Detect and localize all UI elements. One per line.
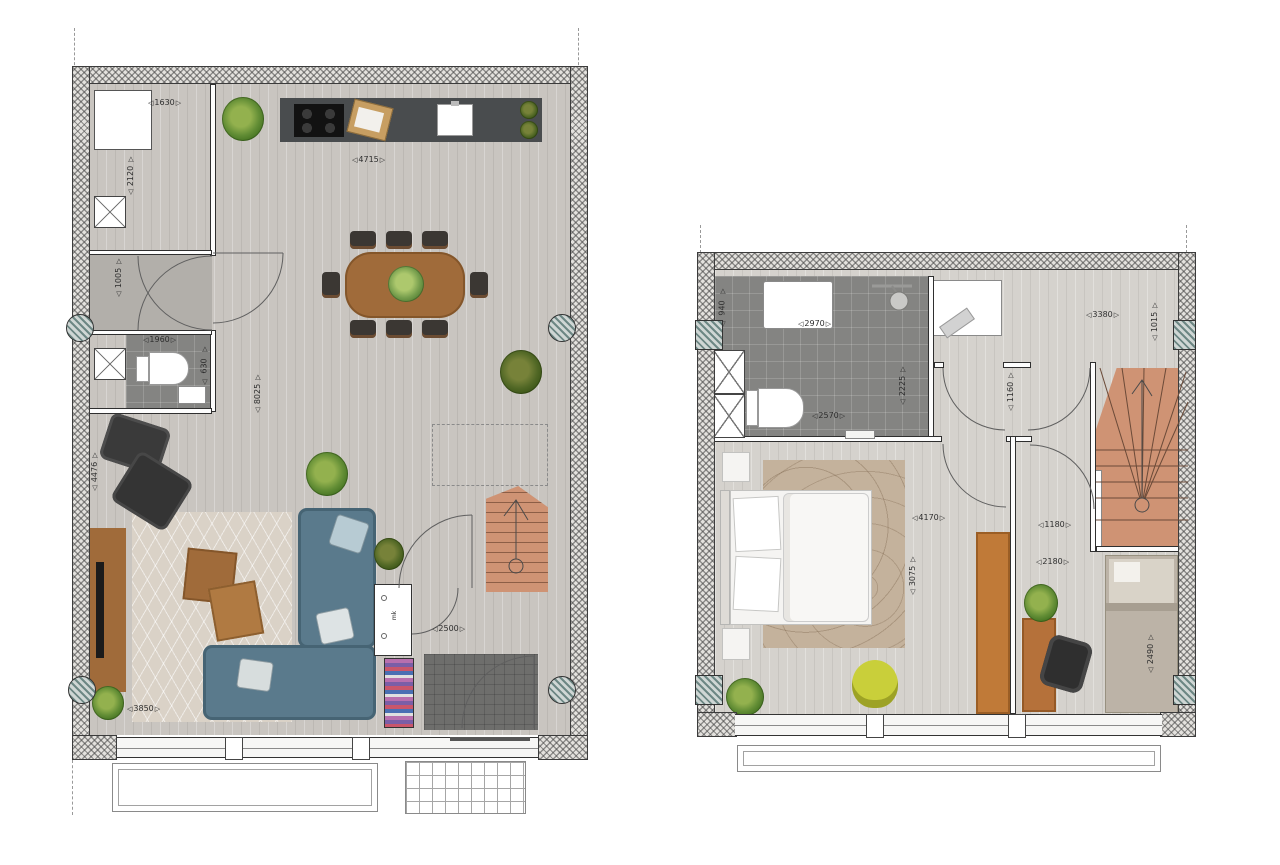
dim-arrow-right-icon: ▷	[460, 626, 465, 633]
wall-bottom-stub	[697, 712, 737, 737]
wardrobe	[976, 532, 1010, 714]
dim-arrow-right-icon: ▷	[1064, 559, 1069, 566]
dim-arrow-down-icon: ▽	[1008, 405, 1013, 412]
dim-arrow-right-icon: ▷	[155, 706, 160, 713]
dining-chair	[350, 320, 376, 338]
dim-arrow-down-icon: ▽	[900, 399, 905, 406]
dim-value: 3075	[909, 566, 917, 586]
window-band	[735, 714, 1162, 736]
dim-arrow-left-icon: ◁	[432, 626, 437, 633]
dim-arrow-down-icon: ▽	[720, 321, 725, 328]
dim-arrow-up-icon: △	[92, 452, 97, 459]
terrace-outline	[112, 763, 378, 812]
storage-cabinet	[94, 90, 152, 150]
dining-chair	[386, 320, 412, 338]
balcony-outline	[737, 745, 1161, 772]
plant-icon	[726, 678, 764, 716]
dimension-label: △8025▽	[251, 374, 265, 414]
wall-left	[72, 66, 90, 740]
balcony-inner-line	[743, 751, 1155, 766]
dimension-label: ◁3380▷	[1086, 311, 1119, 319]
dimension-label: ◁3850▷	[127, 705, 160, 713]
floorplan-canvas: mk ◁1630▷ ◁4715▷ △2120▽ △1005▽ ◁1960▷ △6…	[0, 0, 1280, 865]
plant-icon	[1024, 584, 1058, 622]
dimension-label: ◁1960▷	[143, 336, 176, 344]
dim-value: 4715	[358, 156, 378, 164]
bed-headboard	[720, 490, 730, 625]
dimension-label: ◁1630▷	[148, 99, 181, 107]
dim-value: 1630	[154, 99, 174, 107]
dim-value: 940	[719, 300, 727, 315]
interior-wall	[1003, 362, 1031, 368]
stair-void-dashed	[432, 424, 548, 486]
terrace-inner-line	[118, 769, 372, 806]
staircase-winder	[1096, 368, 1182, 548]
dim-arrow-left-icon: ◁	[1038, 522, 1043, 529]
dim-arrow-right-icon: ▷	[176, 100, 181, 107]
pier	[1173, 675, 1196, 705]
dim-value: 4476	[91, 462, 99, 482]
dim-arrow-up-icon: △	[910, 556, 915, 563]
plant-icon	[520, 101, 538, 119]
wall-bottom-stub	[1160, 712, 1196, 737]
column	[66, 314, 94, 342]
dim-arrow-left-icon: ◁	[1036, 559, 1041, 566]
meter-dial-icon	[381, 595, 387, 601]
dim-value: 3850	[133, 705, 153, 713]
toilet-tank	[746, 390, 758, 426]
dimension-label: ◁4170▷	[912, 514, 945, 522]
pier	[1173, 320, 1196, 350]
dim-value: 2120	[127, 166, 135, 186]
table-centerpiece-plant	[388, 266, 424, 302]
pillow	[236, 658, 274, 692]
pillow	[1114, 562, 1140, 582]
meter-dial-icon	[381, 633, 387, 639]
board-paper	[354, 107, 384, 133]
dim-arrow-right-icon: ▷	[1066, 522, 1071, 529]
column	[548, 314, 576, 342]
single-bed	[1105, 555, 1178, 713]
dim-arrow-right-icon: ▷	[840, 413, 845, 420]
dim-value: 2570	[818, 412, 838, 420]
interior-wall	[88, 408, 212, 414]
column	[68, 676, 96, 704]
dim-arrow-down-icon: ▽	[1152, 335, 1157, 342]
pillow	[733, 496, 782, 552]
entrance-hall-floor	[88, 255, 212, 330]
dining-chair	[422, 231, 448, 249]
column	[548, 676, 576, 704]
dim-arrow-left-icon: ◁	[143, 337, 148, 344]
dim-value: 2180	[1042, 558, 1062, 566]
dim-arrow-right-icon: ▷	[171, 337, 176, 344]
interior-wall	[1096, 546, 1188, 552]
dim-arrow-up-icon: △	[1152, 302, 1157, 309]
dim-arrow-right-icon: ▷	[1114, 312, 1119, 319]
bookshelf	[384, 658, 414, 728]
dimension-label: △630▽	[198, 346, 212, 386]
window-mullion	[225, 737, 243, 760]
duct-shaft	[713, 350, 745, 394]
dimension-label: △4476▽	[88, 452, 102, 492]
dim-arrow-down-icon: ▽	[92, 485, 97, 492]
dimension-label: △2225▽	[896, 366, 910, 406]
dim-value: 1960	[149, 336, 169, 344]
tv-screen	[96, 562, 104, 658]
dimension-label: ◁2970▷	[798, 320, 831, 328]
window-mullion	[1008, 714, 1026, 738]
dim-arrow-left-icon: ◁	[1086, 312, 1091, 319]
dining-chair	[386, 231, 412, 249]
dim-value: 3380	[1092, 311, 1112, 319]
window-glass-line	[735, 725, 1162, 726]
dim-arrow-up-icon: △	[128, 156, 133, 163]
interior-wall	[712, 436, 942, 442]
dim-arrow-down-icon: ▽	[1148, 667, 1153, 674]
dim-arrow-up-icon: △	[900, 366, 905, 373]
dim-arrow-up-icon: △	[720, 288, 725, 295]
wall-bottom-stub	[72, 735, 117, 760]
dimension-label: ◁2500▷	[432, 625, 465, 633]
dining-chair	[470, 272, 488, 298]
dim-arrow-left-icon: ◁	[812, 413, 817, 420]
wc-sink	[178, 386, 206, 404]
plant-icon	[500, 350, 542, 394]
dimension-label: △1015▽	[1148, 302, 1162, 342]
front-door-leaf	[450, 737, 530, 741]
interior-wall	[88, 250, 212, 255]
faucet	[451, 101, 459, 106]
window-glass-line	[117, 748, 440, 749]
dim-arrow-up-icon: △	[1008, 372, 1013, 379]
duvet-fold	[1106, 603, 1177, 611]
dim-arrow-down-icon: ▽	[202, 379, 207, 386]
dining-chair	[422, 320, 448, 338]
dim-arrow-down-icon: ▽	[255, 407, 260, 414]
dim-arrow-up-icon: △	[1148, 634, 1153, 641]
dim-arrow-right-icon: ▷	[380, 157, 385, 164]
dim-arrow-down-icon: ▽	[128, 189, 133, 196]
dim-arrow-up-icon: △	[116, 258, 121, 265]
plant-icon	[520, 121, 538, 139]
dimension-label: △940▽	[716, 288, 730, 328]
kitchen-sink	[437, 104, 473, 136]
dim-arrow-down-icon: ▽	[116, 291, 121, 298]
coffee-table	[208, 580, 265, 642]
duvet	[783, 493, 869, 622]
dim-value: 2490	[1147, 644, 1155, 664]
meter-closet-label: mk	[391, 611, 398, 620]
nightstand	[722, 452, 750, 482]
wall-bottom-stub	[538, 735, 588, 760]
dim-value: 8025	[254, 384, 262, 404]
door-threshold	[845, 430, 875, 439]
dim-value: 1005	[115, 268, 123, 288]
dim-value: 2970	[804, 320, 824, 328]
dim-arrow-left-icon: ◁	[127, 706, 132, 713]
dim-value: 2225	[899, 376, 907, 396]
toilet	[149, 352, 189, 385]
dim-value: 1180	[1044, 521, 1064, 529]
dim-arrow-left-icon: ◁	[912, 515, 917, 522]
dim-arrow-up-icon: △	[255, 374, 260, 381]
dimension-label: ◁2180▷	[1036, 558, 1069, 566]
wall-right	[570, 66, 588, 740]
dimension-label: △3075▽	[906, 556, 920, 596]
wall-top	[72, 66, 588, 84]
duct-shaft	[94, 196, 126, 228]
toilet-tank	[136, 356, 149, 382]
dim-value: 2500	[438, 625, 458, 633]
duct-shaft	[713, 394, 745, 438]
dim-arrow-right-icon: ▷	[826, 321, 831, 328]
dimension-label: ◁1180▷	[1038, 521, 1071, 529]
dim-arrow-up-icon: △	[202, 346, 207, 353]
dim-value: 4170	[918, 514, 938, 522]
toilet	[758, 388, 804, 428]
dimension-label: △2120▽	[124, 156, 138, 196]
plant-icon	[306, 452, 348, 496]
wall-top	[697, 252, 1196, 270]
staircase	[486, 486, 548, 592]
lounge-chair-yellow	[852, 660, 898, 708]
interior-wall	[1010, 436, 1016, 714]
window-sliding-doors	[117, 737, 440, 758]
dining-chair	[350, 231, 376, 249]
entry-mat	[424, 654, 538, 730]
tv-cabinet	[88, 528, 126, 692]
dim-value: 1015	[1151, 312, 1159, 332]
dim-value: 1160	[1007, 382, 1015, 402]
plant-icon	[92, 686, 124, 720]
plant-icon	[222, 97, 264, 141]
dimension-label: △1005▽	[112, 258, 126, 298]
plant-icon	[374, 538, 404, 570]
dim-arrow-left-icon: ◁	[148, 100, 153, 107]
dining-chair	[322, 272, 340, 298]
interior-wall	[934, 362, 944, 368]
interior-wall	[1090, 362, 1096, 552]
dim-arrow-down-icon: ▽	[910, 589, 915, 596]
dimension-label: △1160▽	[1004, 372, 1018, 412]
dim-arrow-right-icon: ▷	[940, 515, 945, 522]
dimension-label: ◁2570▷	[812, 412, 845, 420]
duct-shaft	[94, 348, 126, 380]
interior-wall	[210, 84, 216, 256]
double-bed	[730, 490, 872, 625]
sofa-chaise	[203, 645, 376, 720]
pillow	[733, 556, 782, 612]
window-mullion	[866, 714, 884, 738]
nightstand	[722, 628, 750, 660]
threshold-line	[440, 748, 538, 749]
window-mullion	[352, 737, 370, 760]
dim-value: 630	[201, 358, 209, 373]
interior-wall	[928, 276, 934, 440]
pier	[695, 675, 723, 705]
dim-arrow-left-icon: ◁	[798, 321, 803, 328]
terrace-grate	[405, 761, 526, 814]
dimension-label: △2490▽	[1144, 634, 1158, 674]
cooktop	[294, 104, 344, 137]
dimension-label: ◁4715▷	[352, 156, 385, 164]
dim-arrow-left-icon: ◁	[352, 157, 357, 164]
